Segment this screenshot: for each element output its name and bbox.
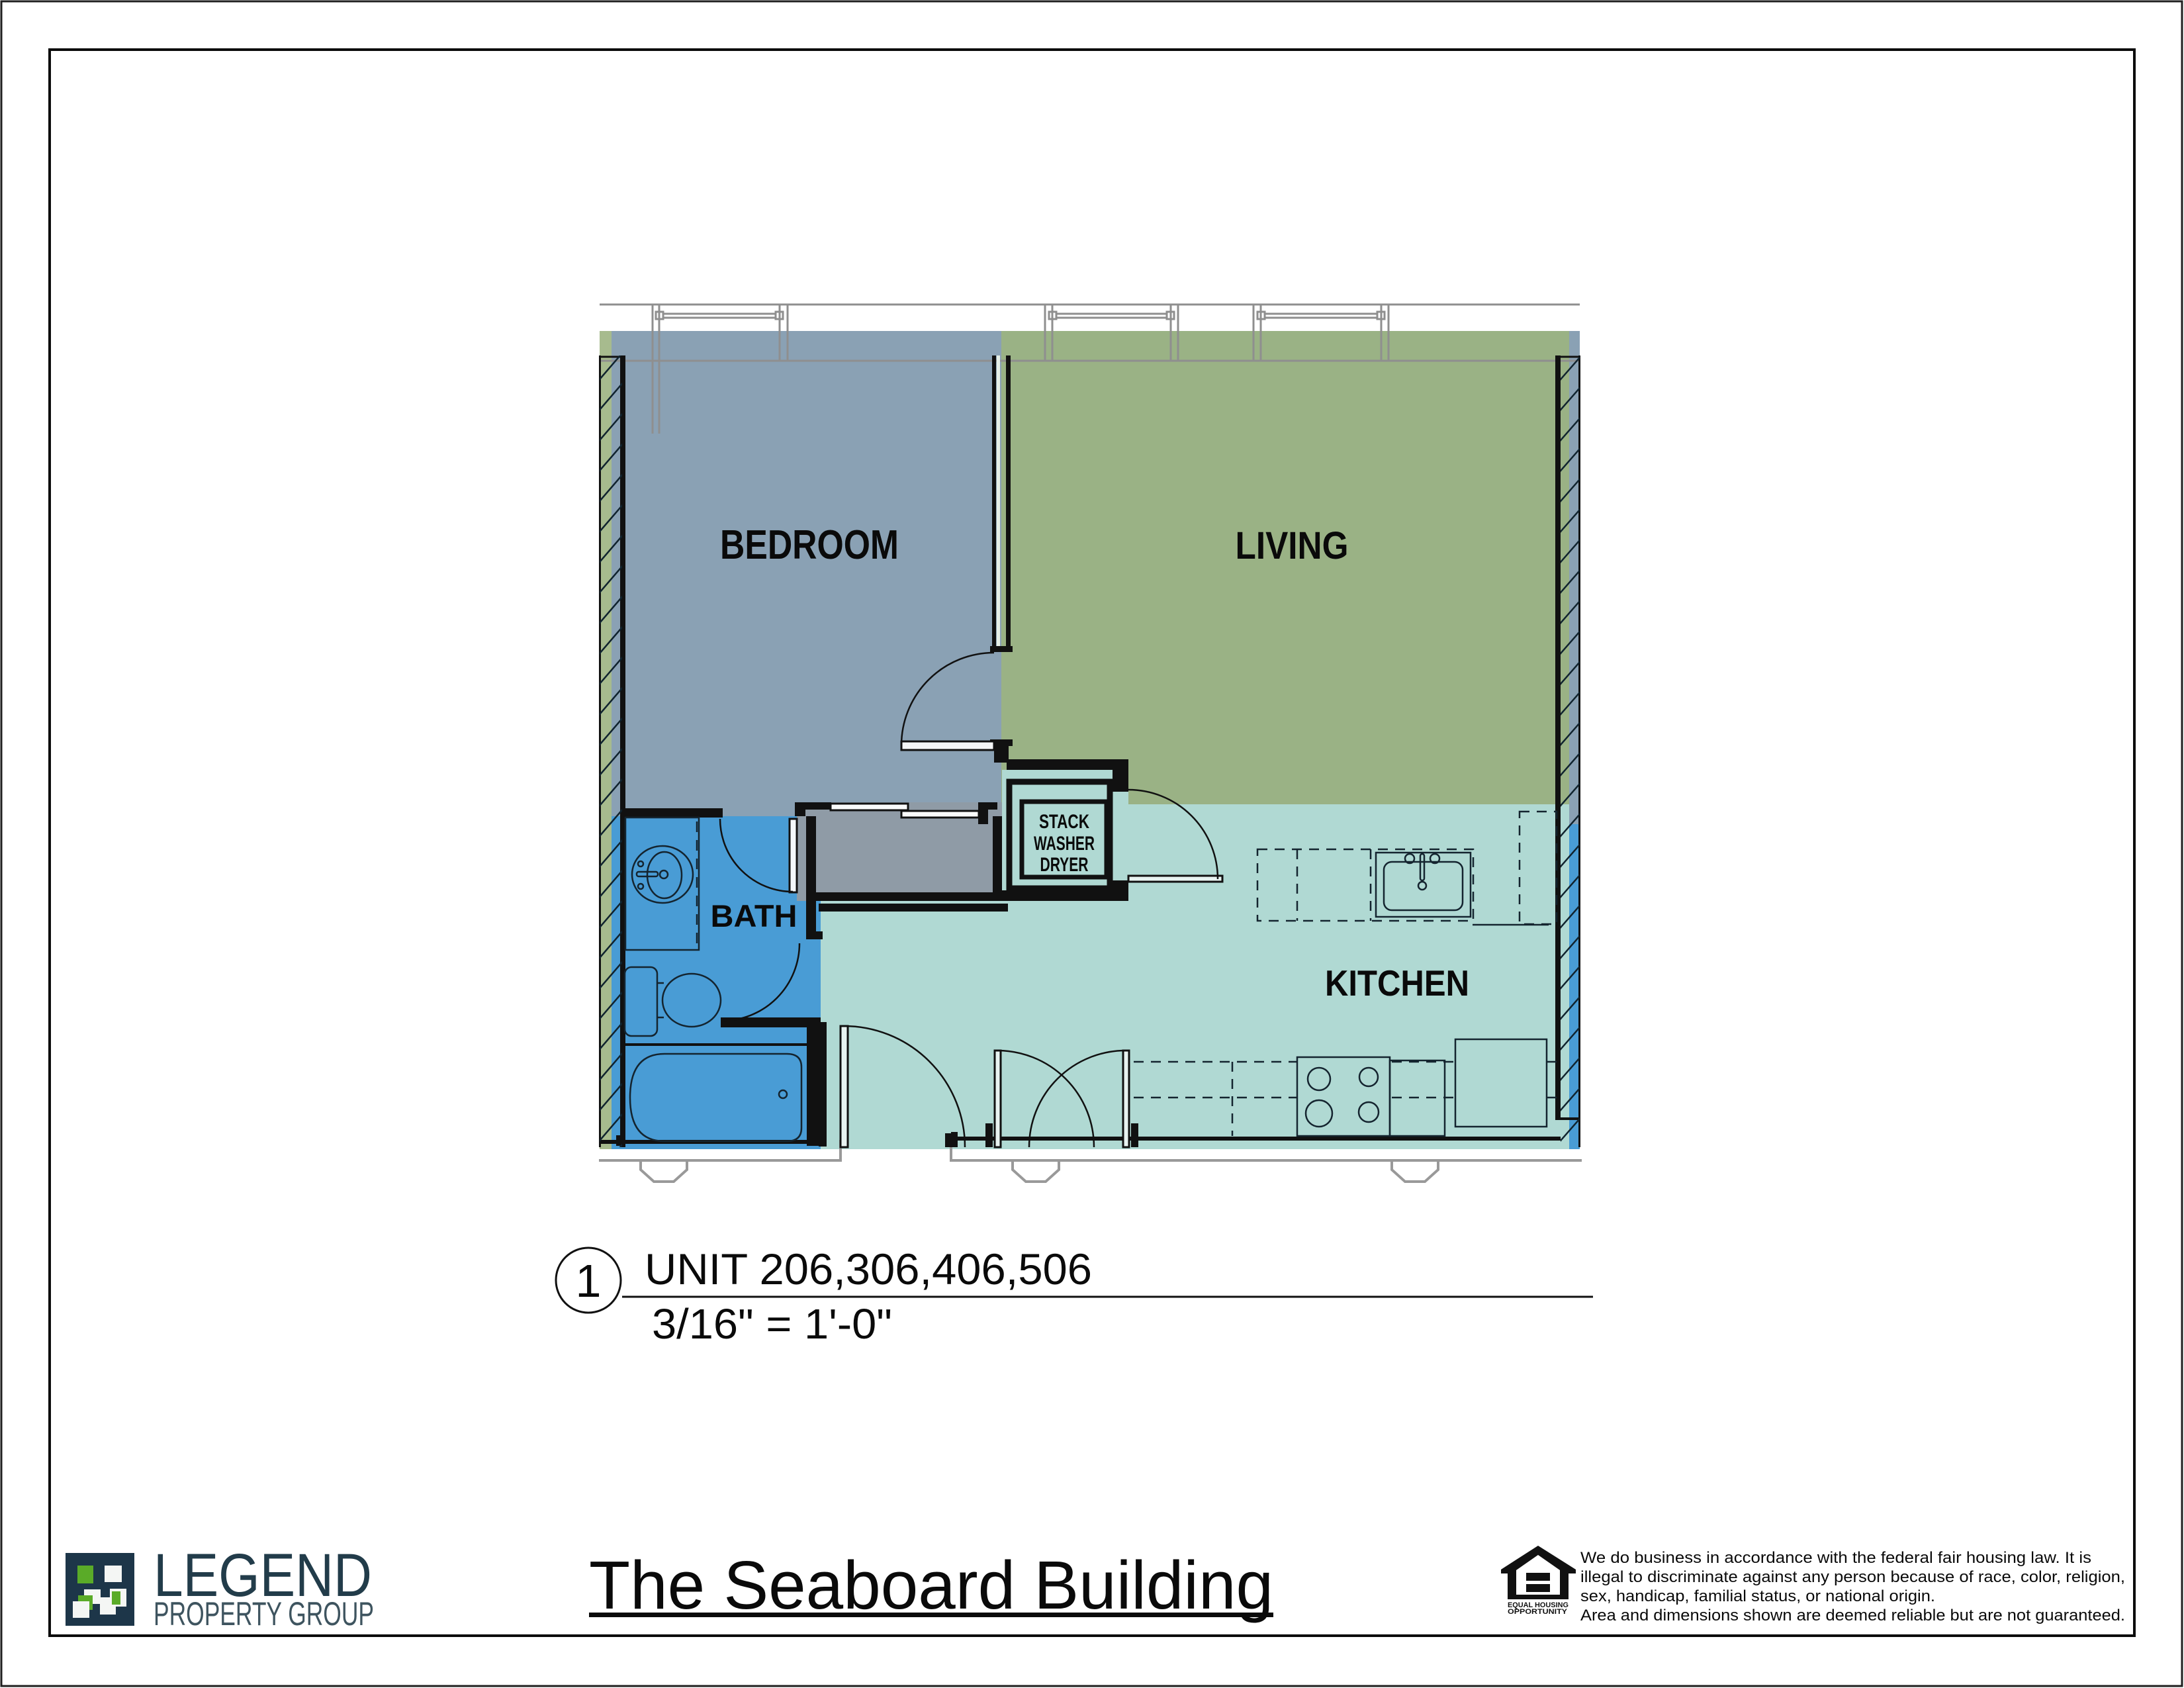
svg-text:1: 1 — [576, 1255, 602, 1307]
svg-text:3/16" = 1'-0": 3/16" = 1'-0" — [652, 1300, 892, 1348]
svg-text:UNIT 206,306,406,506: UNIT 206,306,406,506 — [645, 1244, 1092, 1293]
svg-text:PROPERTY GROUP: PROPERTY GROUP — [154, 1595, 374, 1632]
svg-text:BATH: BATH — [711, 898, 797, 933]
svg-text:WASHER: WASHER — [1034, 833, 1095, 855]
svg-text:OPPORTUNITY: OPPORTUNITY — [1508, 1608, 1568, 1616]
svg-text:illegal to discriminate agains: illegal to discriminate against any pers… — [1580, 1568, 2125, 1586]
svg-text:We do business in accordance w: We do business in accordance with the fe… — [1580, 1549, 2091, 1567]
svg-text:STACK: STACK — [1039, 811, 1089, 833]
svg-text:BEDROOM: BEDROOM — [720, 522, 899, 568]
svg-text:DRYER: DRYER — [1040, 854, 1089, 876]
svg-text:LIVING: LIVING — [1236, 524, 1349, 567]
svg-text:Area and dimensions shown are: Area and dimensions shown are deemed rel… — [1580, 1607, 2125, 1624]
svg-text:KITCHEN: KITCHEN — [1325, 962, 1469, 1004]
svg-text:The Seaboard Building: The Seaboard Building — [589, 1547, 1273, 1623]
svg-text:sex, handicap, familial status: sex, handicap, familial status, or natio… — [1580, 1587, 1935, 1605]
